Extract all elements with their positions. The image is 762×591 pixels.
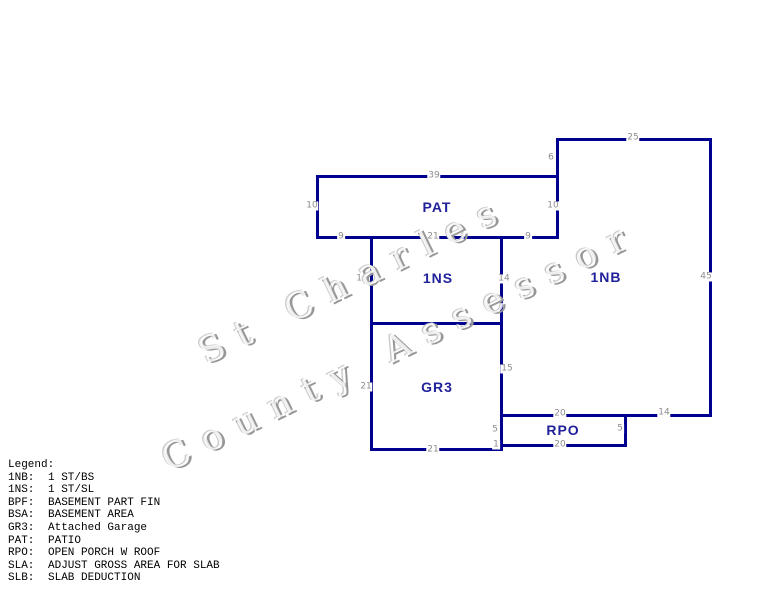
- legend-code: SLA:: [8, 560, 48, 573]
- legend-description: BASEMENT PART FIN: [48, 497, 160, 509]
- legend-description: ADJUST GROSS AREA FOR SLAB: [48, 560, 220, 572]
- area-label-1ns: 1NS: [423, 271, 453, 285]
- area-label-pat: PAT: [423, 200, 452, 214]
- legend-code: RPO:: [8, 547, 48, 560]
- area-label-1nb: 1NB: [590, 270, 621, 284]
- legend-code: PAT:: [8, 535, 48, 548]
- legend-row: 1NB:1 ST/BS: [8, 472, 220, 485]
- dimension-label: 14: [497, 275, 510, 284]
- legend-description: 1 ST/BS: [48, 472, 94, 484]
- legend-row: BSA:BASEMENT AREA: [8, 509, 220, 522]
- legend-row: SLB:SLAB DEDUCTION: [8, 572, 220, 585]
- legend-rows: 1NB:1 ST/BS1NS:1 ST/SLBPF:BASEMENT PART …: [8, 472, 220, 585]
- dimension-label: 21: [426, 446, 439, 455]
- legend-code: SLB:: [8, 572, 48, 585]
- legend-row: 1NS:1 ST/SL: [8, 484, 220, 497]
- dimension-label: 9: [524, 233, 532, 242]
- sketch-wall-line: [556, 138, 559, 239]
- legend-description: SLAB DEDUCTION: [48, 572, 140, 584]
- area-label-rpo: RPO: [546, 423, 579, 437]
- legend-description: 1 ST/SL: [48, 484, 94, 496]
- legend-description: OPEN PORCH W ROOF: [48, 547, 160, 559]
- dimension-label: 20: [553, 410, 566, 419]
- dimension-label: 14: [657, 409, 670, 418]
- dimension-label: 45: [699, 273, 712, 282]
- legend-description: PATIO: [48, 535, 81, 547]
- area-label-gr3: GR3: [421, 380, 453, 394]
- dimension-label: 5: [616, 425, 624, 434]
- watermark-line-2: County Assessor: [155, 212, 647, 480]
- dimension-label: 39: [427, 172, 440, 181]
- legend-row: BPF:BASEMENT PART FIN: [8, 497, 220, 510]
- dimension-label: 25: [626, 134, 639, 143]
- legend-row: PAT:PATIO: [8, 535, 220, 548]
- legend-code: GR3:: [8, 522, 48, 535]
- dimension-label: 14: [355, 275, 368, 284]
- sketch-wall-line: [624, 414, 627, 447]
- sketch-wall-line: [500, 414, 712, 417]
- legend-description: BASEMENT AREA: [48, 509, 134, 521]
- sketch-wall-line: [500, 236, 503, 451]
- sketch-wall-line: [370, 322, 503, 325]
- dimension-label: 20: [553, 441, 566, 450]
- legend-title: Legend:: [8, 459, 220, 472]
- legend-code: BSA:: [8, 509, 48, 522]
- legend-row: SLA:ADJUST GROSS AREA FOR SLAB: [8, 560, 220, 573]
- dimension-label: 10: [546, 202, 559, 211]
- dimension-label: 5: [491, 426, 499, 435]
- legend: Legend: 1NB:1 ST/BS1NS:1 ST/SLBPF:BASEME…: [8, 459, 220, 585]
- legend-code: 1NB:: [8, 472, 48, 485]
- dimension-label: 21: [426, 233, 439, 242]
- sketch-wall-line: [370, 236, 373, 451]
- dimension-label: 6: [547, 154, 555, 163]
- dimension-label: 15: [500, 365, 513, 374]
- dimension-label: 10: [305, 202, 318, 211]
- dimension-label: 1: [492, 441, 500, 450]
- legend-code: BPF:: [8, 497, 48, 510]
- legend-code: 1NS:: [8, 484, 48, 497]
- legend-row: GR3:Attached Garage: [8, 522, 220, 535]
- dimension-label: 21: [359, 383, 372, 392]
- dimension-label: 9: [337, 233, 345, 242]
- legend-description: Attached Garage: [48, 522, 147, 534]
- assessor-sketch-canvas: St Charles County Assessor 2563910109219…: [0, 0, 762, 591]
- legend-row: RPO:OPEN PORCH W ROOF: [8, 547, 220, 560]
